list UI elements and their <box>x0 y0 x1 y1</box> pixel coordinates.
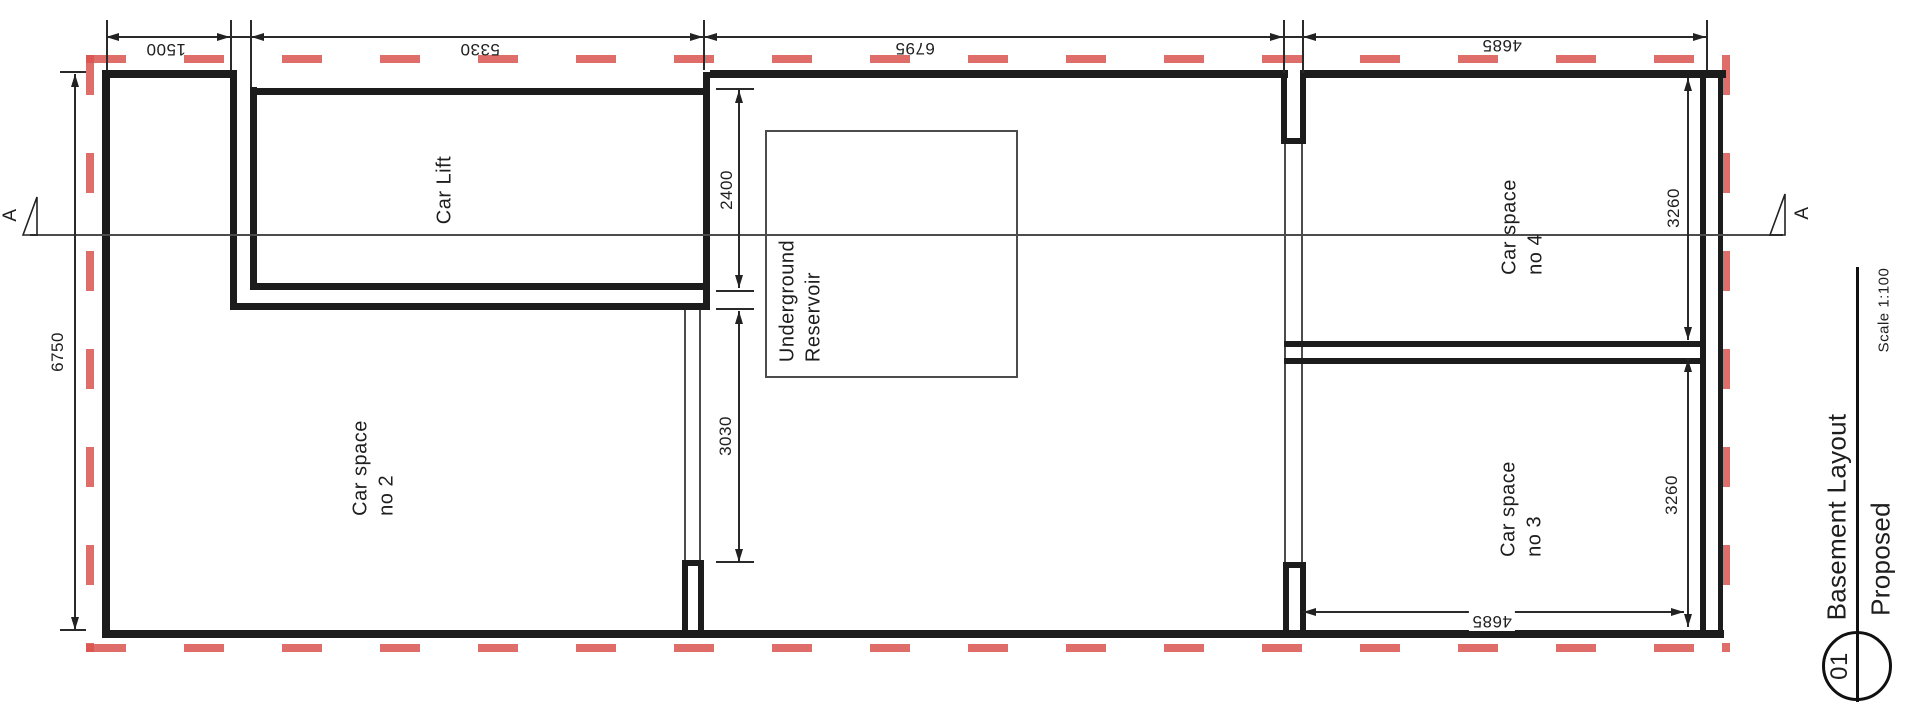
dim-text-4685-bottom: 4685 <box>1469 611 1515 631</box>
partition-2-pier <box>1283 562 1306 632</box>
wall-carlift-top <box>250 88 710 95</box>
dim-text-4685-top: 4685 <box>1482 35 1522 55</box>
dim-arrow <box>1684 78 1692 91</box>
dim-text-6795: 6795 <box>895 38 935 58</box>
divider-wall-lower-line <box>1284 358 1706 364</box>
dim-arrow <box>735 549 743 562</box>
dim-text-5330: 5330 <box>460 39 500 59</box>
room-label-line: Underground <box>775 240 801 362</box>
hatch-right <box>1722 55 1730 652</box>
section-label-right: A <box>1792 206 1814 219</box>
section-label-left: A <box>0 208 22 221</box>
dim-line-3260-lower <box>1687 359 1689 627</box>
room-label-car-space-2: Car space no 2 <box>348 420 401 516</box>
wall-top-middle-segment <box>710 70 1288 78</box>
title-block-status: Proposed <box>1866 502 1897 616</box>
partition-2-line-a <box>1284 144 1286 562</box>
wall-right-inner <box>1700 78 1706 631</box>
dim-arrow <box>1684 327 1692 340</box>
dim-arrow <box>690 33 703 41</box>
title-block-title: Basement Layout <box>1822 414 1853 621</box>
wall-right-outer <box>1718 70 1723 638</box>
room-label-line: Car space <box>348 420 374 516</box>
room-label-car-space-4: Car space no 4 <box>1497 179 1550 275</box>
dim-arrow <box>1693 33 1706 41</box>
dim-text-3260-upper: 3260 <box>1664 188 1684 228</box>
partition-1-line-a <box>684 310 686 560</box>
dim-arrow <box>1303 33 1316 41</box>
pier-top-left <box>1281 72 1287 144</box>
dim-text-2400: 2400 <box>717 170 737 210</box>
divider-wall-upper-line <box>1284 341 1706 347</box>
title-block-scale: Scale 1:100 <box>1876 268 1893 353</box>
dim-arrow <box>735 311 743 324</box>
dim-tick <box>716 308 754 310</box>
room-label-line: Car space <box>1497 179 1523 275</box>
dim-line-3260-upper <box>1687 78 1689 340</box>
room-label-line: no 2 <box>374 420 400 516</box>
dim-arrow <box>106 33 119 41</box>
wall-carlift-bottom <box>250 283 710 290</box>
dim-ext-top-5 <box>1283 20 1285 73</box>
dim-arrow <box>704 33 717 41</box>
dim-line-3030 <box>738 311 740 562</box>
partition-1-line-b <box>699 310 701 560</box>
wall-top-left-segment <box>102 70 237 78</box>
wall-bottom <box>102 630 1724 638</box>
wall-band-bottom <box>230 303 710 310</box>
dim-ext-top-7 <box>1706 20 1708 70</box>
dim-line-left <box>74 74 76 630</box>
dim-ext-top-4 <box>703 20 705 70</box>
section-marker-left-triangle <box>20 194 42 238</box>
dim-ext-top-2 <box>230 20 232 70</box>
pier-top-right <box>1300 72 1306 144</box>
dim-arrow <box>1684 359 1692 372</box>
dim-arrow <box>1671 608 1684 616</box>
dim-arrow <box>1303 608 1316 616</box>
partition-1-pier <box>682 560 704 632</box>
room-label-line: Reservoir <box>801 240 827 362</box>
dim-arrow <box>71 74 79 87</box>
dim-text-3260-lower: 3260 <box>1662 475 1682 515</box>
wall-left <box>102 70 110 638</box>
dim-arrow <box>735 90 743 103</box>
room-label-car-space-3: Car space no 3 <box>1496 461 1549 557</box>
dim-tick <box>716 290 754 292</box>
section-marker-right-triangle <box>1766 191 1790 238</box>
dim-ext-left-top <box>60 71 86 73</box>
dim-text-1500: 1500 <box>146 39 186 59</box>
wall-carlift-right <box>703 72 710 310</box>
dim-arrow <box>71 617 79 630</box>
dim-line-2400 <box>738 90 740 288</box>
basement-floor-plan: A A 1500 5330 6795 4685 6750 2400 3030 3… <box>0 0 1920 720</box>
room-label-car-lift: Car Lift <box>434 156 457 224</box>
dim-arrow <box>251 33 264 41</box>
wall-top-right-segment <box>1300 70 1726 78</box>
room-label-line: no 4 <box>1523 179 1549 275</box>
room-label-line: Car space <box>1496 461 1522 557</box>
dim-arrow <box>1270 33 1283 41</box>
wall-carlift-left <box>250 87 257 290</box>
hatch-bottom <box>86 644 1730 652</box>
dim-arrow <box>735 275 743 288</box>
dim-arrow <box>1684 614 1692 627</box>
dim-ext-top-1 <box>106 20 108 70</box>
dim-ext-top-3 <box>250 20 252 87</box>
room-label-line: no 3 <box>1522 461 1548 557</box>
room-label-underground-reservoir: Underground Reservoir <box>775 240 828 362</box>
dim-text-6750: 6750 <box>48 332 68 372</box>
wall-entry-strip-right <box>230 70 237 310</box>
dim-arrow <box>217 33 230 41</box>
dim-ext-top-6 <box>1302 20 1304 73</box>
dim-text-3030: 3030 <box>716 416 736 456</box>
drawing-number: 01 <box>1826 652 1854 680</box>
hatch-left <box>86 55 94 652</box>
partition-2-line-b <box>1301 144 1303 562</box>
